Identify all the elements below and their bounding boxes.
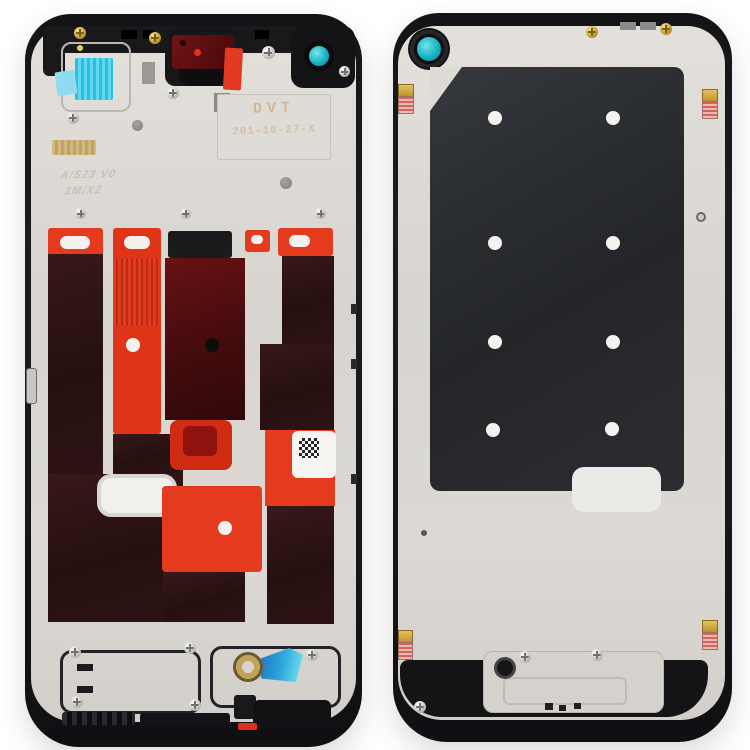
pink-adhesive-tab: [702, 632, 718, 650]
adhesive-red-blob-inner: [183, 426, 217, 456]
thermal-pad-hole: [606, 111, 620, 125]
sheet-notch-cutout: [572, 467, 661, 512]
gold-screw: [74, 27, 86, 39]
edge-clip: [351, 474, 357, 484]
thermal-pad-hole: [605, 422, 619, 436]
adhesive-darkred-panel: [165, 258, 245, 420]
philips-screw: [315, 208, 326, 219]
adhesive-cutout: [124, 236, 150, 249]
gold-ring-hole: [233, 652, 263, 682]
thermal-pad-hole: [606, 335, 620, 349]
philips-screw: [189, 699, 201, 711]
pink-adhesive-tab: [398, 96, 414, 114]
philips-screw: [69, 646, 81, 658]
philips-screw: [519, 651, 531, 663]
gold-screw: [586, 26, 598, 38]
side-key-slot: [26, 368, 37, 404]
emboss-inner-line: [503, 677, 627, 705]
adhesive-dark-panel: [267, 506, 334, 624]
bottom-speaker-block: [253, 700, 331, 728]
rivet-dot: [280, 177, 292, 189]
edge-clip: [351, 359, 357, 369]
bottom-notch: [574, 703, 581, 709]
bottom-round-hole: [494, 657, 516, 679]
cyan-sticker-tab: [54, 70, 77, 97]
product-photo: DVT 201-10-27-X A/S23 V0 1M/X2: [0, 0, 750, 750]
philips-screw: [180, 208, 191, 219]
adhesive-dark-panel: [48, 254, 103, 474]
edge-tab: [620, 22, 636, 30]
thermal-pad-hole: [486, 423, 500, 437]
back-frame: [393, 13, 732, 742]
philips-screw: [591, 649, 603, 661]
rivet-dot: [132, 120, 143, 131]
camera-red-dot: [194, 49, 201, 56]
camera-lens-teal: [417, 37, 441, 61]
adhesive-dark-panel: [163, 572, 245, 622]
bottom-molding: [140, 713, 230, 726]
philips-screw: [75, 208, 86, 219]
code-plate-line1: DVT: [218, 98, 331, 119]
edge-tab: [640, 22, 656, 30]
edge-clip: [351, 304, 357, 314]
bottom-notch: [559, 705, 566, 711]
philips-screw: [414, 701, 426, 713]
adhesive-black-header: [168, 231, 232, 258]
philips-screw: [67, 112, 79, 124]
gold-screw: [149, 32, 161, 44]
adhesive-orange-panel: [162, 486, 262, 572]
gold-screw: [660, 23, 672, 35]
gasket-slot: [77, 664, 93, 671]
bottom-grille: [62, 712, 135, 725]
adhesive-dark-panel: [282, 256, 334, 344]
thermal-pad-hole: [488, 335, 502, 349]
thermal-pad-hole: [606, 236, 620, 250]
etched-marking: A/S23 V0 1M/X2: [55, 164, 163, 199]
gray-pad: [142, 62, 155, 84]
qr-code: [299, 438, 319, 458]
earpiece-bracket: [178, 69, 228, 86]
graphite-sheet: [430, 67, 684, 491]
molding-slot: [255, 30, 269, 39]
adhesive-hole: [218, 521, 232, 535]
adhesive-black-hole: [205, 338, 219, 352]
pink-adhesive-tab: [702, 101, 718, 119]
adhesive-hole: [126, 338, 140, 352]
plate-screw: [696, 212, 706, 222]
molding-slot: [121, 30, 137, 39]
adhesive-stripe-texture: [113, 258, 161, 326]
cyan-sticker: [75, 58, 113, 100]
pink-adhesive-tab: [398, 642, 413, 660]
bottom-notch: [545, 703, 553, 710]
adhesive-dark-panel: [260, 344, 334, 430]
camera-dot: [180, 40, 186, 46]
camera-lens-teal: [304, 41, 334, 71]
code-plate-line2: 201-10-27-X: [218, 123, 330, 139]
philips-screw: [71, 696, 83, 708]
gold-contact-patch: [52, 140, 96, 155]
philips-screw: [262, 46, 275, 59]
philips-screw: [306, 649, 318, 661]
gasket-slot: [77, 686, 93, 693]
philips-screw: [184, 642, 196, 654]
red-bottom-tab: [238, 723, 257, 730]
front-frame: DVT 201-10-27-X A/S23 V0 1M/X2: [25, 14, 362, 747]
adhesive-cutout: [251, 235, 263, 244]
philips-screw: [167, 87, 179, 99]
thermal-pad-hole: [488, 111, 502, 125]
code-plate: DVT 201-10-27-X: [217, 94, 331, 160]
plate-dot: [421, 530, 427, 536]
thermal-pad-hole: [488, 236, 502, 250]
adhesive-cutout: [60, 236, 90, 249]
adhesive-strip-red: [113, 228, 161, 434]
red-pull-tab: [223, 48, 243, 91]
adhesive-cutout: [289, 235, 310, 247]
philips-screw: [339, 66, 350, 77]
